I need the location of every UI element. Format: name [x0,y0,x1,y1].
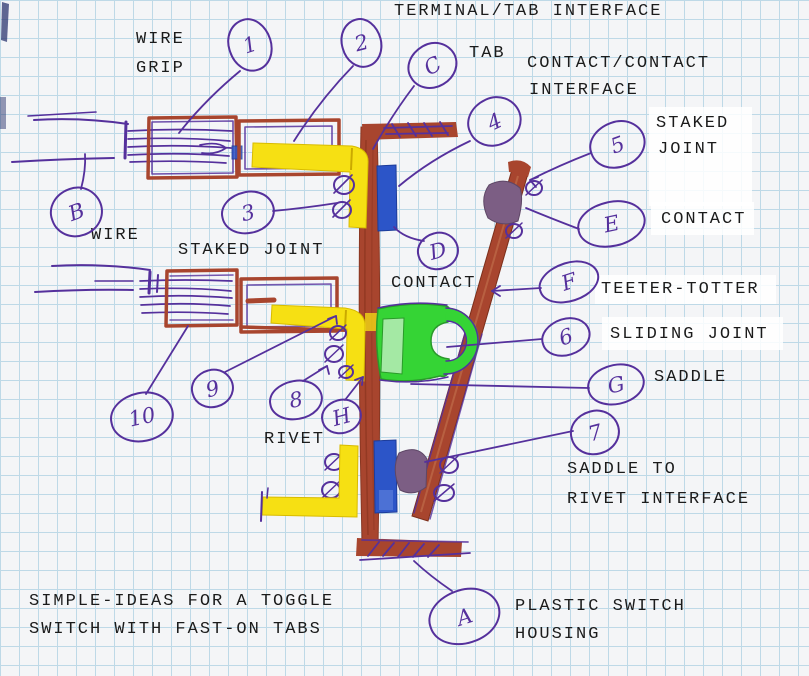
callout-6-char: 6 [556,324,576,351]
callout-8-char: 8 [287,387,304,413]
label-staked-joint-right-line2: JOINT [658,141,719,160]
label-contact-right: CONTACT [661,211,746,230]
callout-D-char: D [427,237,449,265]
tab-3 [261,445,358,521]
callout-10-char: 10 [126,402,157,431]
callout-C-char: C [420,51,446,80]
callout-5-char: 5 [607,131,628,158]
callout-G-char: G [605,371,626,398]
sketch-title-line2: SWITCH WITH FAST-ON TABS [29,621,322,640]
label-plastic-housing-line1: PLASTIC SWITCH [515,598,686,617]
wire-2-strands [140,280,232,314]
label-saddle-to-rivet-line2: RIVET INTERFACE [567,491,750,510]
label-staked-joint-left: STAKED JOINT [178,242,324,261]
label-tab: TAB [469,45,506,64]
wire-1-strands [128,130,232,164]
label-sliding-joint: SLIDING JOINT [610,326,769,345]
callout-7-char: 7 [585,419,604,446]
label-wire-grip-line1: WIRE [136,31,185,50]
callout-E-char: E [602,211,622,238]
tab-2 [271,305,378,381]
scan-artifacts [0,2,9,129]
label-contact-contact-line1: CONTACT/CONTACT [527,55,710,74]
label-contact-contact-line2: INTERFACE [529,82,639,101]
callout-1-char: 1 [240,32,260,59]
callout-9-char: 9 [203,375,222,402]
callout-4-char: 4 [483,108,505,135]
callout-3-char: 3 [239,199,257,225]
sketch-title-line1: SIMPLE-IDEAS FOR A TOGGLE [29,593,334,612]
label-teeter-totter: TEETER-TOTTER [601,281,760,300]
contact-dome-top [484,180,542,238]
callout-B-char: B [65,198,88,226]
label-contact-mid: CONTACT [391,275,476,294]
label-saddle: SADDLE [654,369,727,388]
label-plastic-housing-line2: HOUSING [515,626,600,645]
rivet-dome [395,450,427,493]
wire-1 [12,112,128,162]
label-wire-left: WIRE [91,227,140,246]
callout-A-char: A [454,603,476,631]
label-saddle-to-rivet-line1: SADDLE TO [567,461,677,480]
callout-2-char: 2 [352,30,371,57]
label-wire-grip-line2: GRIP [136,60,185,79]
contact-blue-1 [377,165,397,231]
graph-paper-sketch: TERMINAL/TAB INTERFACE WIRE GRIP TAB CON… [0,0,809,676]
contact-blue-2 [374,440,397,513]
callout-F-char: F [558,268,579,295]
label-terminal-tab-interface: TERMINAL/TAB INTERFACE [394,3,662,22]
label-staked-joint-right-line1: STAKED [656,115,729,134]
label-rivet: RIVET [264,431,325,450]
callout-H-char: H [330,403,354,431]
